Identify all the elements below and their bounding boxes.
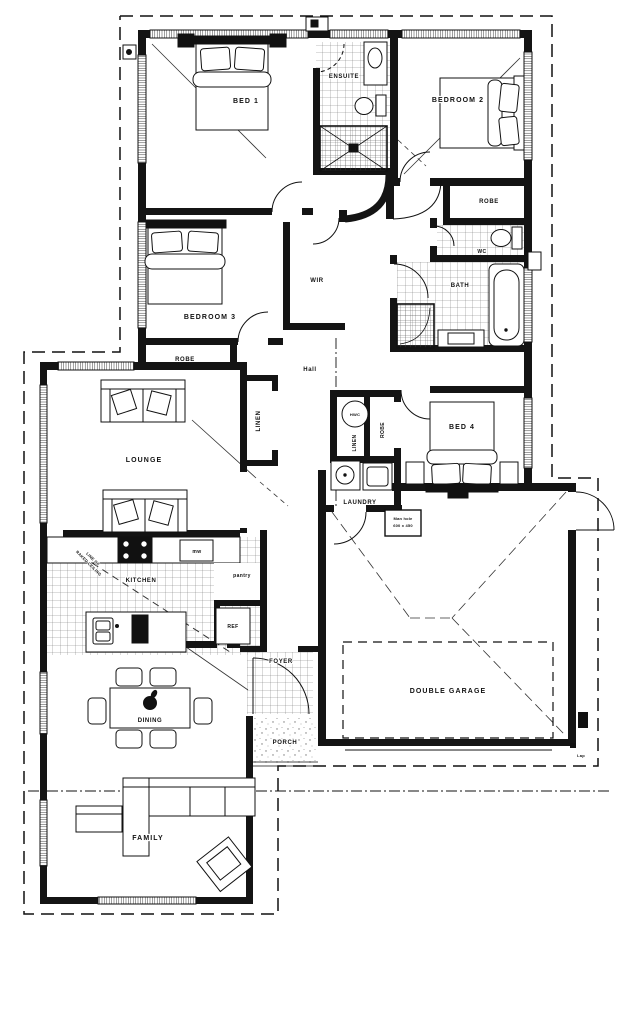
room-label-robe4: ROBE (380, 422, 386, 438)
bedroom2-side-window (524, 52, 532, 160)
bedroom2-furniture (440, 76, 524, 150)
manhole-line2: 600 x 450 (393, 523, 413, 528)
family-side-window (40, 800, 47, 866)
bedroom2-top-window (402, 30, 520, 38)
room-label-family: FAMILY (132, 835, 164, 842)
laundry-door-arc (334, 512, 366, 544)
lounge-window (40, 385, 47, 523)
room-label-laundry: LAUNDRY (343, 500, 376, 506)
room-label-porch: PORCH (273, 740, 298, 746)
ensuite-toilet (355, 98, 373, 115)
room-label-lounge: LOUNGE (126, 457, 163, 464)
room-label-linen-right: LINEN (352, 435, 358, 452)
lounge-furniture (101, 380, 187, 532)
bath-shower (397, 304, 434, 348)
room-label-linen-left: LINEN (256, 411, 262, 432)
room-label-wc: WC (477, 249, 486, 255)
manhole-line1: Man hole (394, 516, 414, 521)
laundry-fixtures (331, 461, 392, 490)
wc-toilet (491, 230, 511, 247)
room-label-bed4: BED 4 (449, 424, 475, 431)
room-label-wir: WIR (310, 278, 324, 284)
garage-side-door-arc (576, 492, 614, 530)
bath-window (524, 268, 532, 342)
room-label-bath: BATH (451, 283, 470, 289)
dishwasher (132, 615, 148, 643)
bed4-door-arc (401, 390, 430, 419)
room-label-kitchen: KITCHEN (126, 578, 157, 584)
room-label-robe2: ROBE (479, 199, 499, 205)
meter-box (578, 712, 588, 728)
floor-plan: BED 1 ENSUITE BEDROOM 2 ROBE WC BATH BED… (0, 0, 624, 1024)
table-centerpiece (144, 697, 157, 710)
room-label-robe3: ROBE (175, 357, 195, 363)
dining-furniture (88, 668, 212, 748)
garage-fixtures (385, 510, 588, 748)
room-label-bedroom3: BEDROOM 3 (184, 314, 236, 321)
dining-window (40, 672, 47, 734)
room-label-hall: Hall (303, 367, 316, 373)
bed1-furniture (178, 34, 286, 130)
room-label-dining: DINING (138, 718, 163, 724)
walls (40, 30, 576, 904)
bed1-side-window (138, 55, 146, 163)
ensuite-window (330, 30, 388, 38)
label-pantry: pantry (233, 573, 251, 579)
hall-curved-wall (345, 175, 389, 219)
floor-plan-drawing: BED 1 ENSUITE BEDROOM 2 ROBE WC BATH BED… (0, 0, 624, 1024)
family-bottom-window (98, 897, 196, 904)
bedroom2-door-arc (400, 152, 430, 182)
room-label-garage: DOUBLE GARAGE (410, 688, 487, 695)
doors (238, 44, 614, 714)
room-label-bedroom2: BEDROOM 2 (432, 97, 484, 104)
cooktop (118, 537, 152, 563)
room-label-ensuite: ENSUITE (329, 74, 359, 80)
room-label-bed1: BED 1 (233, 98, 259, 105)
label-fridge: REF (227, 624, 238, 630)
bedroom3-window (138, 222, 146, 328)
wir-door-arc (313, 218, 339, 244)
family-furniture (76, 778, 255, 891)
bedroom3-door-arc (238, 312, 268, 342)
label-lap: Lap (577, 753, 585, 758)
bed1-door-arc (272, 182, 302, 212)
label-hwc: HWC (350, 412, 360, 417)
lounge-top-window (58, 362, 134, 370)
room-label-foyer: FOYER (269, 659, 293, 665)
bedroom3-furniture (145, 220, 226, 304)
bed4-furniture (406, 402, 518, 498)
bed4-window (524, 398, 532, 468)
tv-unit (76, 806, 122, 832)
wall-meter (528, 252, 541, 270)
label-microwave: mw (192, 549, 201, 555)
pantry-nook (214, 563, 260, 600)
